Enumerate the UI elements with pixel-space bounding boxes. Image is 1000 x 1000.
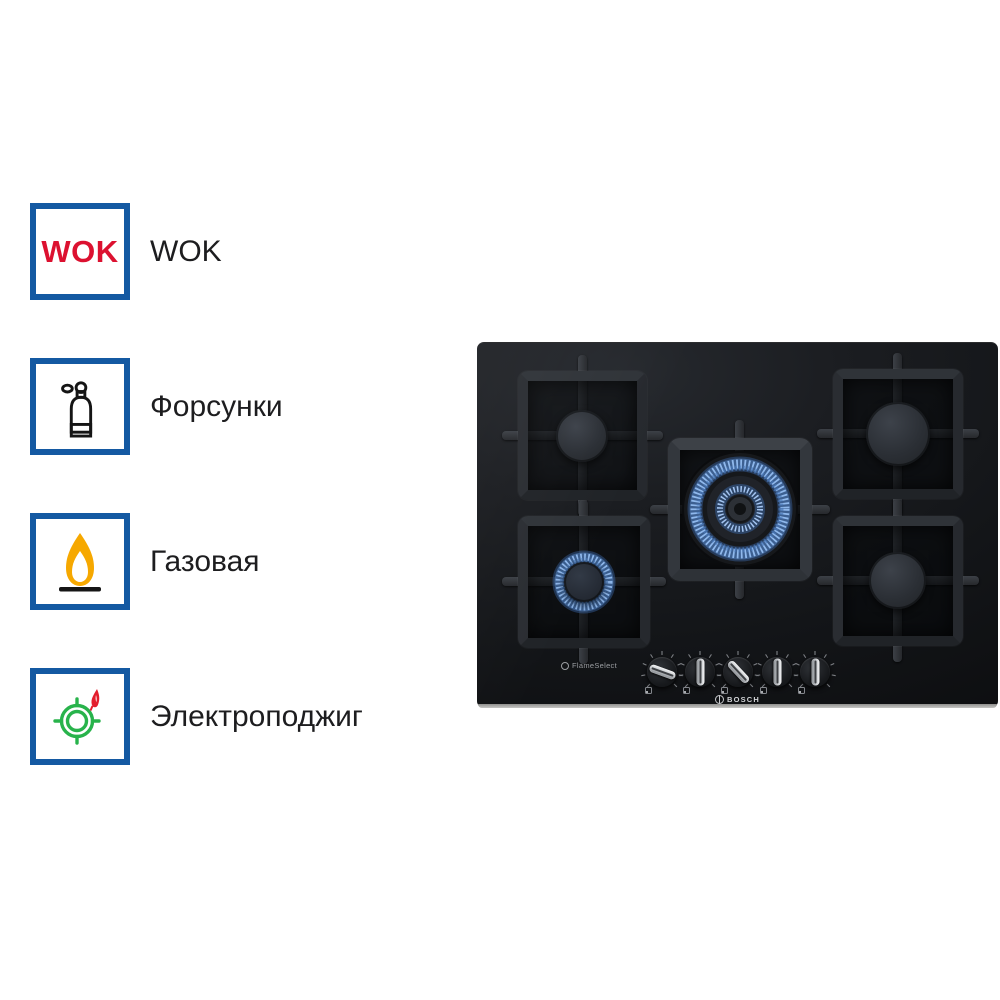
feature-label-gas: Газовая bbox=[150, 544, 260, 580]
feature-label-ignition: Электроподжиг bbox=[150, 699, 363, 735]
control-knob-1 bbox=[647, 657, 677, 687]
control-knob-5 bbox=[800, 657, 830, 687]
gas-flame-icon bbox=[48, 527, 112, 597]
bosch-symbol-icon bbox=[715, 695, 724, 704]
knob-handle bbox=[773, 659, 781, 686]
bosch-wordmark: BOSCH bbox=[727, 695, 760, 704]
flameselect-icon bbox=[561, 662, 569, 670]
feature-label-wok: WOK bbox=[150, 234, 222, 270]
feature-box-nozzles bbox=[30, 358, 130, 455]
wok-burner-dual-flame bbox=[678, 447, 802, 571]
gas-cylinder-icon bbox=[49, 374, 111, 440]
burner-cap-top-right bbox=[866, 402, 930, 466]
hob-front-edge bbox=[478, 704, 997, 708]
feature-box-ignition bbox=[30, 668, 130, 765]
flameselect-text: FlameSelect bbox=[572, 661, 617, 670]
control-knob-2 bbox=[685, 657, 715, 687]
feature-box-wok: WOK bbox=[30, 203, 130, 300]
flameselect-badge: FlameSelect bbox=[561, 661, 617, 670]
burner-position-indicator bbox=[683, 687, 690, 694]
burner-position-indicator bbox=[798, 687, 805, 694]
knob-handle bbox=[696, 659, 704, 686]
burner-cap-bottom-left bbox=[564, 562, 604, 602]
wok-badge-icon: WOK bbox=[41, 234, 118, 270]
control-knob-3 bbox=[723, 657, 753, 687]
burner-position-indicator bbox=[760, 687, 767, 694]
knob-handle bbox=[726, 659, 750, 684]
gas-hob-image: FlameSelect BOSCH bbox=[477, 342, 998, 708]
control-knob-4 bbox=[762, 657, 792, 687]
feature-box-gas bbox=[30, 513, 130, 610]
electric-ignition-icon bbox=[45, 684, 115, 750]
burner-cap-bottom-right bbox=[869, 552, 926, 609]
burner-cap-top-left bbox=[556, 410, 608, 462]
knob-handle bbox=[811, 659, 819, 686]
bosch-logo: BOSCH bbox=[477, 695, 998, 704]
burner-position-indicator bbox=[645, 687, 652, 694]
knob-handle bbox=[648, 664, 676, 681]
feature-label-nozzles: Форсунки bbox=[150, 389, 283, 425]
burner-position-indicator bbox=[721, 687, 728, 694]
